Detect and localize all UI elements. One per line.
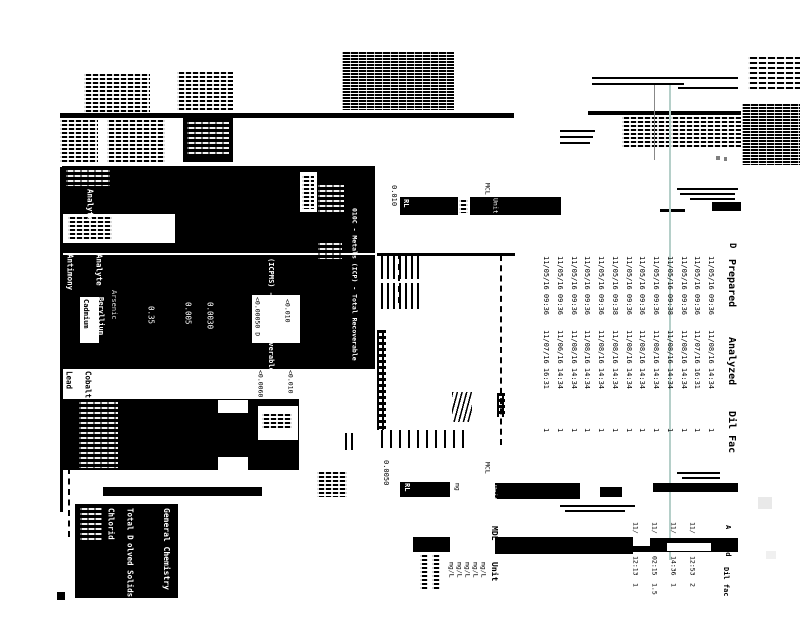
speckle-1 — [716, 156, 720, 160]
prep-cell-prepared: 11/05/16 09:36 — [625, 256, 632, 315]
analyte-column-header: Analyte — [86, 189, 94, 221]
mini-cell-dil: 1 — [670, 583, 677, 587]
mid-right-line-1 — [677, 188, 738, 190]
mini-cell-dil: 1 — [632, 583, 639, 587]
prep-cell-dilfac: 1 — [570, 428, 577, 432]
result-lt-0_0060: <0.0060 — [257, 370, 264, 397]
result-0_005: 0.005 — [184, 302, 192, 325]
prep-cell-analyzed: 11/08/16 14:34 — [680, 330, 687, 389]
bottom-bar-4 — [653, 483, 738, 492]
bottom-line-1 — [677, 472, 720, 474]
analyte-arsenic: Arsenic — [110, 290, 117, 320]
smear-block-right-2 — [622, 117, 741, 147]
bottom-long-bar — [103, 487, 262, 496]
smear-block-3 — [183, 117, 233, 162]
mini-cell-frag: 11/ — [651, 522, 658, 534]
metals-white-smear-1 — [318, 185, 344, 213]
tick-line-1 — [560, 130, 595, 132]
rule-top-right-1 — [592, 77, 738, 79]
prep-cell-dilfac: 1 — [583, 428, 590, 432]
bottom-bar-3 — [600, 487, 622, 497]
prep-cell-prepared: 11/05/16 09:36 — [556, 256, 563, 315]
result-lt-0_00050: <0.00050 D — [254, 297, 261, 336]
prep-cell-prepared: 11/05/16 09:36 — [707, 256, 714, 315]
prep-cell-prepared: 11/05/16 09:36 — [583, 256, 590, 315]
mini-cell-frag: 11/ — [632, 522, 639, 534]
speckle-2 — [724, 157, 727, 161]
smear-top-center — [342, 52, 454, 110]
result-lt-0_010-b: <0.010 — [287, 370, 294, 393]
faint-vertical-line — [654, 85, 655, 160]
smear-block-right — [742, 104, 800, 165]
rl-value-top: 0.010 — [390, 185, 397, 206]
gc-bar-2 — [495, 537, 633, 554]
prep-cell-dilfac: 1 — [556, 428, 563, 432]
section-title-icp: 010C - Metals (ICP) - Total Recoverable — [351, 208, 358, 361]
faint-smudge-1 — [758, 497, 772, 509]
metals-block-bottom — [62, 399, 299, 470]
rl-label-bottom: RL — [403, 483, 410, 491]
prep-cell-prepared: 11/05/16 09:36 — [570, 256, 577, 315]
metals-white-smear-3 — [66, 170, 110, 186]
prep-cell-analyzed: 11/08/16 14:34 — [570, 330, 577, 389]
mini-header-analyzed-frag: A — [724, 525, 731, 529]
metals-white-notch — [63, 214, 175, 243]
prep-cell-prepared: 11/05/16 09:36 — [680, 256, 687, 315]
prep-cell-prepared: 11/05/16 09:38 — [611, 256, 618, 315]
smear-block-3-texture — [187, 122, 229, 157]
prep-cell-prepared: 11/05/16 09:36 — [693, 256, 700, 315]
unit-label-bottom: Unit — [491, 485, 498, 501]
metals-notch-2-smear — [302, 176, 314, 209]
mid-right-line-3 — [690, 198, 735, 200]
bottom-line-4 — [565, 510, 625, 512]
prep-cell-analyzed: 11/08/16 14:34 — [707, 330, 714, 389]
mini-header-dilfac: Dil fac — [722, 567, 729, 597]
analyte-lead: Lead — [65, 371, 73, 389]
mini-cell-time: 12:53 — [689, 556, 696, 576]
prep-cell-prepared: 11/05/16 09:36 — [542, 256, 549, 315]
mini-table-bar-notch-2 — [667, 543, 711, 551]
rl-label-top: RL — [402, 199, 409, 207]
prep-cell-analyzed: 11/08/16 14:34 — [597, 330, 604, 389]
analyte-cadmium: Cadmium — [82, 299, 89, 329]
gc-header-mdl: MDL — [490, 526, 498, 540]
squiggle-marks — [452, 392, 472, 422]
prep-cell-dilfac: 1 — [611, 428, 618, 432]
mid-right-bar — [712, 202, 741, 211]
metals-bottom-white-smear — [79, 402, 118, 468]
mid-right-line-2 — [680, 193, 735, 195]
gc-degraded-col-1 — [420, 555, 428, 591]
scanned-lab-report-page: Analyte Antimony Analyte Arsenic Berylli… — [0, 0, 800, 618]
metals-bottom-patch-3 — [258, 406, 298, 440]
smear-block-2 — [107, 120, 165, 164]
faint-smudge-2 — [766, 551, 776, 559]
tick-marks-mid — [345, 433, 353, 450]
page-rule-right — [588, 111, 741, 115]
prep-cell-dilfac: 1 — [652, 428, 659, 432]
smear-top-right-corner — [748, 57, 800, 89]
header-bar-notch-smear — [459, 200, 468, 213]
gc-bar-1 — [413, 537, 450, 552]
prep-cell-prepared: 11/05/16 09:36 — [597, 256, 604, 315]
prep-cell-analyzed: 11/06/16 14:34 — [556, 330, 563, 389]
prep-cell-analyzed: 11/07/16 16:31 — [693, 330, 700, 389]
analyte-cobalt: Cobalt — [84, 371, 92, 398]
prep-cell-dilfac: 1 — [666, 428, 673, 432]
prep-cell-prepared: 11/05/16 09:36 — [638, 256, 645, 315]
prep-cell-analyzed: 11/08/16 14:34 — [638, 330, 645, 389]
smear-top-left-1 — [84, 74, 150, 112]
barcode-debris-column — [377, 330, 386, 430]
prep-cell-analyzed: 11/08/16 14:34 — [652, 330, 659, 389]
gc-unit-cell: mg/L — [464, 562, 471, 578]
bottom-smear-1 — [317, 472, 347, 497]
prep-header-d: D — [727, 243, 736, 248]
smear-top-left-2 — [177, 72, 233, 110]
gc-block-smear — [80, 508, 102, 540]
section-title-icpms: (ICPMS) - Total Recoverable — [267, 258, 274, 372]
rule-top-right-3 — [678, 87, 738, 89]
prep-cell-analyzed: 11/08/16 14:34 — [666, 330, 673, 389]
mini-cell-frag: 11/ — [670, 522, 677, 534]
gc-analyte-tds-b: olved Solids — [126, 543, 134, 597]
barcode-debris-1 — [381, 255, 419, 279]
gc-unit-cell: mg/L — [448, 562, 455, 578]
barcode-debris-3 — [381, 430, 469, 448]
mini-cell-dil: 1.5 — [651, 583, 658, 595]
result-0_0030: 0.0030 — [206, 302, 214, 329]
analyte-antimony: Antimony — [66, 254, 74, 290]
metals-white-notch-2 — [300, 172, 317, 212]
metals-bottom-patch-3-smear — [262, 414, 292, 428]
gc-unit-cell: mg/L — [480, 562, 487, 578]
mini-table-bar-notch-1 — [633, 538, 650, 546]
mini-cell-frag: 11/ — [689, 522, 696, 534]
prep-cell-dilfac: 1 — [693, 428, 700, 432]
mini-cell-time: 02:15 — [651, 556, 658, 576]
barcode-debris-2 — [381, 283, 419, 309]
prep-cell-analyzed: 11/08/16 14:34 — [611, 330, 618, 389]
unit-label-top: Unit — [492, 198, 499, 214]
mini-cell-time: 14:36 — [670, 556, 677, 576]
prep-cell-prepared: 11/05/16 09:38 — [666, 256, 673, 315]
tick-line-2 — [560, 136, 593, 138]
header-bar-top — [400, 197, 561, 215]
mini-header-prepared-frag: ed — [724, 548, 731, 556]
prep-cell-dilfac: 1 — [680, 428, 687, 432]
rl-value-bottom: 0.0050 — [382, 460, 389, 485]
metals-white-smear-2 — [318, 243, 342, 259]
prep-cell-analyzed: 11/08/16 14:34 — [583, 330, 590, 389]
prep-cell-analyzed: 11/07/16 16:31 — [542, 330, 549, 389]
prep-cell-dilfac: 1 — [638, 428, 645, 432]
metals-bottom-patch-2 — [218, 457, 248, 470]
corner-mark — [57, 592, 65, 600]
mini-cell-dil: 2 — [689, 583, 696, 587]
mid-right-line-4 — [660, 209, 685, 212]
mcl-label-bottom: MCL — [484, 462, 491, 474]
gc-unit-cell: mg/L — [456, 562, 463, 578]
mg-fragment: mg — [454, 483, 461, 491]
gc-degraded-col-2 — [432, 555, 440, 591]
smear-block-1 — [60, 120, 98, 164]
analyte-column-header-2: Analyte — [95, 254, 103, 286]
gc-analyte-chloride: Chlorid — [107, 508, 115, 540]
bottom-line-3 — [560, 505, 635, 507]
tick-line-3 — [560, 142, 590, 144]
mini-cell-time: 12:13 — [632, 556, 639, 576]
prep-header-analyzed: Analyzed — [726, 337, 736, 385]
prep-cell-analyzed: 11/08/16 14:34 — [625, 330, 632, 389]
prep-header-prepared: Prepared — [726, 259, 736, 307]
gc-unit-cell: mg/L — [472, 562, 479, 578]
gc-analyte-tds-a: Total D — [126, 508, 134, 540]
prep-cell-dilfac: 1 — [597, 428, 604, 432]
gc-section-title: General Chemistry — [162, 508, 170, 590]
prep-cell-prepared: 11/05/16 09:36 — [652, 256, 659, 315]
prep-cell-dilfac: 1 — [707, 428, 714, 432]
bottom-bar-2 — [495, 483, 580, 499]
prep-header-dilfac: Dil Fac — [726, 411, 736, 453]
left-dashed-line — [68, 468, 70, 537]
result-0_35: 0.35 — [147, 306, 155, 324]
page-rule-left — [60, 113, 514, 118]
prep-cell-dilfac: 1 — [625, 428, 632, 432]
mcl-label-top: MCL — [484, 183, 491, 195]
dash-cluster — [497, 393, 505, 417]
gc-header-unit: Unit — [490, 562, 498, 581]
result-lt-0_010-a: <0.010 — [284, 299, 291, 322]
metals-bottom-patch-1 — [218, 400, 248, 413]
bottom-line-2 — [682, 477, 720, 479]
prep-cell-dilfac: 1 — [542, 428, 549, 432]
metals-block-lower — [62, 255, 375, 369]
